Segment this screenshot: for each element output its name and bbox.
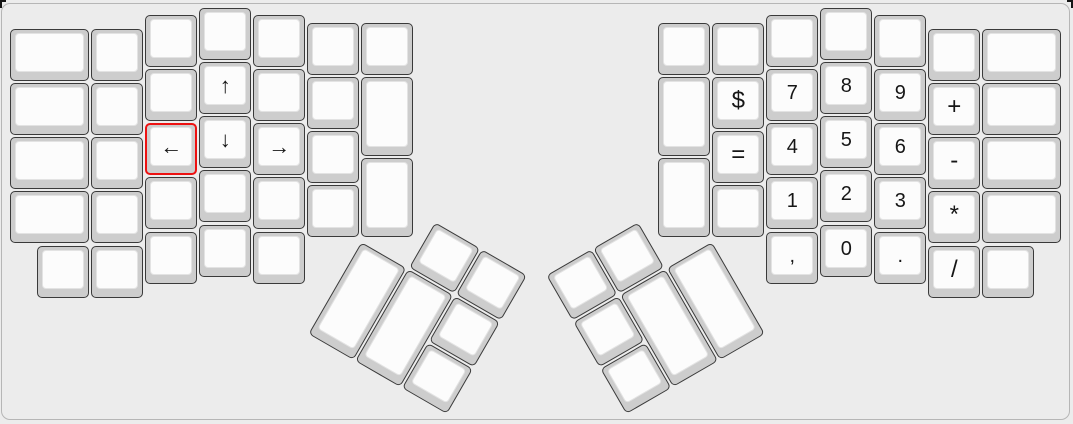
right-half: $=741,8520963.+-*/ [0, 0, 1073, 424]
keycap-top: / [933, 250, 975, 289]
key-asterisk[interactable]: * [928, 191, 980, 243]
key-blank[interactable] [658, 23, 710, 75]
key-legend: 3 [895, 191, 906, 211]
keycap-top: , [771, 236, 813, 275]
keycap-top: 5 [825, 120, 867, 159]
keycap-top: - [933, 141, 975, 180]
key-legend: = [731, 143, 745, 167]
key-blank[interactable] [982, 83, 1061, 135]
key-legend: / [951, 258, 958, 282]
keycap-top: 1 [771, 181, 813, 220]
keycap-top: 2 [825, 174, 867, 213]
keycap-top: 7 [771, 73, 813, 112]
keycap-top [717, 189, 759, 228]
key-blank[interactable] [658, 77, 710, 156]
key-dollar[interactable]: $ [712, 77, 764, 129]
key-legend: 9 [895, 83, 906, 103]
key-comma[interactable]: , [766, 232, 818, 284]
keycap-top: 3 [879, 181, 921, 220]
keycap-top: 4 [771, 127, 813, 166]
keycap-top: 0 [825, 229, 867, 268]
key-blank[interactable] [982, 191, 1061, 243]
key-blank[interactable] [712, 23, 764, 75]
key-legend: * [950, 203, 959, 227]
key-2[interactable]: 2 [820, 170, 872, 222]
key-5[interactable]: 5 [820, 116, 872, 168]
key-blank[interactable] [766, 15, 818, 67]
key-0[interactable]: 0 [820, 225, 872, 277]
keycap-top [771, 19, 813, 58]
keycap-top [987, 250, 1029, 289]
keycap-top: 8 [825, 66, 867, 105]
keycap-top [987, 33, 1056, 72]
key-6[interactable]: 6 [874, 123, 926, 175]
key-7[interactable]: 7 [766, 69, 818, 121]
keycap-top: + [933, 87, 975, 126]
keycap-top: . [879, 236, 921, 275]
key-legend: $ [732, 89, 745, 113]
key-blank[interactable] [928, 29, 980, 81]
keycap-top [717, 27, 759, 66]
key-minus[interactable]: - [928, 137, 980, 189]
keycap-top: = [717, 135, 759, 174]
key-blank[interactable] [982, 137, 1061, 189]
keycap-top [663, 27, 705, 66]
key-period[interactable]: . [874, 232, 926, 284]
key-legend: 6 [895, 137, 906, 157]
key-equals[interactable]: = [712, 131, 764, 183]
key-legend: 0 [841, 239, 852, 259]
keycap-top: * [933, 195, 975, 234]
keycap-top [879, 19, 921, 58]
key-legend: + [947, 95, 961, 119]
key-legend: - [950, 149, 958, 173]
key-legend: 2 [841, 184, 852, 204]
key-legend: 5 [841, 130, 852, 150]
key-blank[interactable] [982, 246, 1034, 298]
key-legend: , [790, 246, 796, 266]
keycap-top: $ [717, 81, 759, 120]
key-1[interactable]: 1 [766, 177, 818, 229]
key-legend: 7 [787, 83, 798, 103]
keycap-top: 9 [879, 73, 921, 112]
key-blank[interactable] [874, 15, 926, 67]
key-4[interactable]: 4 [766, 123, 818, 175]
keycap-top: 6 [879, 127, 921, 166]
keycap-top [987, 87, 1056, 126]
key-blank[interactable] [982, 29, 1061, 81]
key-blank[interactable] [712, 185, 764, 237]
keycap-top [987, 141, 1056, 180]
key-slash[interactable]: / [928, 246, 980, 298]
key-3[interactable]: 3 [874, 177, 926, 229]
keycap-top [663, 81, 705, 147]
keycap-top [933, 33, 975, 72]
keycap-top [825, 12, 867, 51]
key-legend: 1 [787, 191, 798, 211]
key-blank[interactable] [820, 8, 872, 60]
keycap-top [987, 195, 1056, 234]
key-legend: . [898, 246, 904, 266]
key-9[interactable]: 9 [874, 69, 926, 121]
key-8[interactable]: 8 [820, 62, 872, 114]
key-plus[interactable]: + [928, 83, 980, 135]
key-legend: 4 [787, 137, 798, 157]
key-legend: 8 [841, 76, 852, 96]
